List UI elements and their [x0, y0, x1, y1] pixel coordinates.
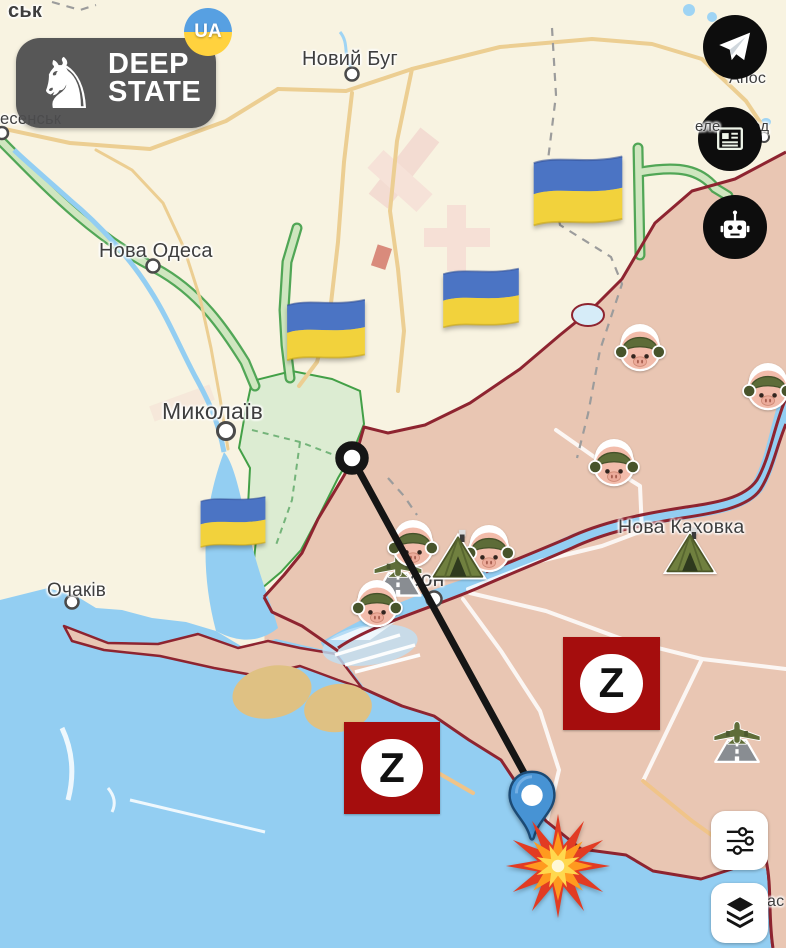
city-label-ochakiv: Очаків [47, 580, 106, 602]
military-airfield-marker[interactable] [708, 716, 766, 766]
z-unit-label: Z [379, 747, 405, 789]
city-label-fragment: ськ [8, 0, 42, 23]
z-unit-marker[interactable]: Z [563, 637, 660, 730]
logo-line1: DEEP [108, 50, 201, 78]
deepstate-logo[interactable]: ♞ DEEP STATE UA [16, 38, 216, 128]
ukraine-flag-marker[interactable] [276, 294, 376, 366]
ukraine-flag-marker[interactable] [430, 263, 532, 333]
robot-icon [714, 206, 756, 248]
bot-button[interactable] [703, 195, 767, 259]
pig-soldier-marker[interactable] [586, 432, 642, 488]
z-unit-marker[interactable]: Z [344, 722, 440, 814]
ukraine-flag-marker[interactable] [516, 150, 640, 232]
map-layers-button[interactable] [711, 883, 768, 943]
city-label-nova-odesa: Нова Одеса [99, 240, 213, 263]
city-label-novyi-buh: Новий Буг [302, 48, 398, 71]
logo-text: DEEP STATE [108, 50, 201, 107]
pig-soldier-marker[interactable] [612, 317, 668, 373]
telegram-button[interactable] [703, 15, 767, 79]
ua-badge: UA [184, 8, 232, 56]
city-label-bottom-right: ас [767, 893, 784, 911]
pig-soldier-marker[interactable] [349, 573, 405, 629]
frontline-reservoir [572, 304, 604, 326]
deepstate-map-app: ськ есенськ Новий Буг Нова Одеса Миколаї… [0, 0, 786, 948]
z-unit-circle: Z [580, 654, 642, 714]
news-button[interactable] [698, 107, 762, 171]
telegram-icon [714, 26, 756, 68]
city-label-mykolaiv: Миколаїв [162, 398, 263, 425]
sliders-icon [719, 820, 761, 862]
layers-icon [719, 893, 761, 933]
chess-knight-icon: ♞ [28, 38, 104, 128]
map-filters-button[interactable] [711, 811, 768, 870]
z-unit-circle: Z [361, 739, 422, 798]
military-tent-marker[interactable] [428, 528, 488, 586]
ukraine-flag-marker[interactable] [189, 492, 277, 552]
z-unit-label: Z [599, 662, 625, 704]
logo-line2: STATE [108, 78, 201, 106]
city-label-zelenodolsk-left: еле [695, 118, 721, 135]
military-tent-marker[interactable] [662, 526, 718, 580]
explosion-marker[interactable] [502, 812, 614, 920]
pig-soldier-marker[interactable] [740, 356, 786, 412]
